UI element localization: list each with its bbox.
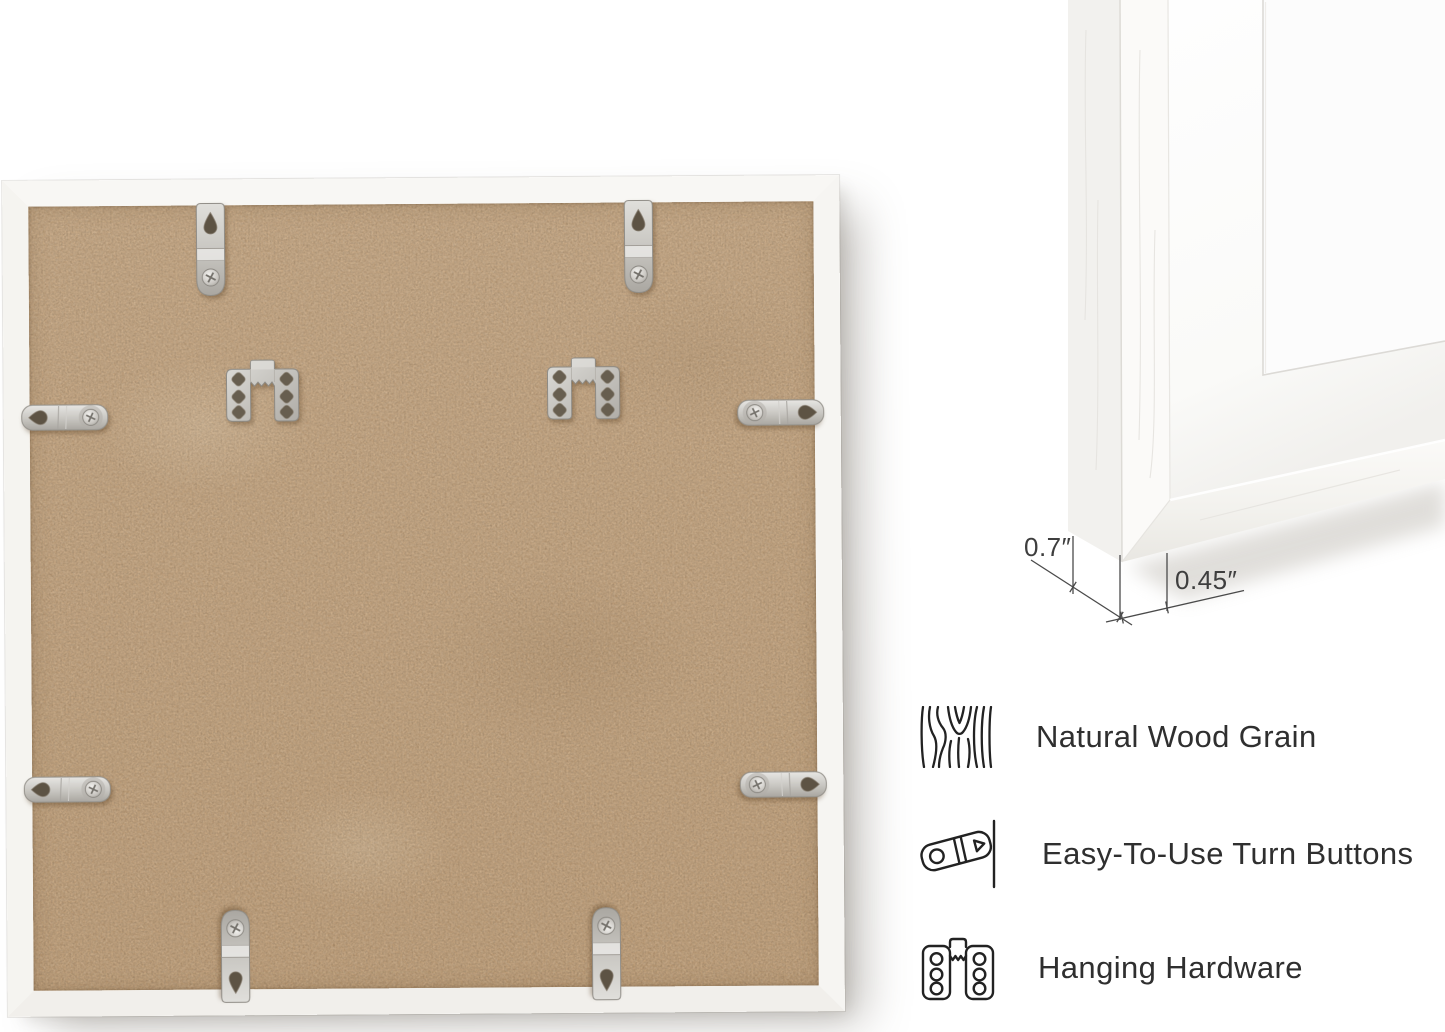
depth-dimension-label: 0.7″ — [1024, 532, 1071, 562]
sawtooth-hanger-tab — [195, 202, 226, 296]
feature-label: Hanging Hardware — [1038, 950, 1303, 986]
wood-grain-icon — [918, 706, 996, 768]
turn-button — [739, 768, 827, 801]
sawtooth-hanger-tab — [591, 907, 622, 1001]
feature-row: Hanging Hardware — [918, 932, 1303, 1004]
mdf-back-panel — [28, 201, 818, 990]
turn-button-icon — [918, 818, 1002, 890]
turn-button — [23, 773, 111, 806]
feature-row: Easy-To-Use Turn Buttons — [918, 817, 1413, 891]
turn-button — [737, 396, 825, 429]
hanging-hardware-plate — [221, 359, 303, 424]
feature-row: Natural Wood Grain — [918, 702, 1317, 772]
face-width-dimension-label: 0.45″ — [1175, 565, 1237, 595]
corner-closeup-photo: 0.7″ 0.45″ — [990, 0, 1445, 660]
hanging-hardware-icon — [918, 935, 998, 1001]
turn-button — [21, 401, 109, 434]
feature-label: Easy-To-Use Turn Buttons — [1042, 836, 1413, 872]
closeup-frame-front-face — [1120, 0, 1170, 562]
back-view-photo — [2, 175, 845, 1017]
product-image: 0.7″ 0.45″ Natural Wood Grain — [0, 0, 1445, 1032]
closeup-frame-side-face — [1068, 0, 1122, 562]
sawtooth-hanger-tab — [623, 199, 654, 293]
feature-label: Natural Wood Grain — [1036, 719, 1317, 755]
closeup-photo-area — [1263, 0, 1445, 375]
sawtooth-hanger-tab — [220, 909, 251, 1003]
mdf-texture — [28, 201, 818, 990]
hanging-hardware-plate — [542, 357, 624, 422]
